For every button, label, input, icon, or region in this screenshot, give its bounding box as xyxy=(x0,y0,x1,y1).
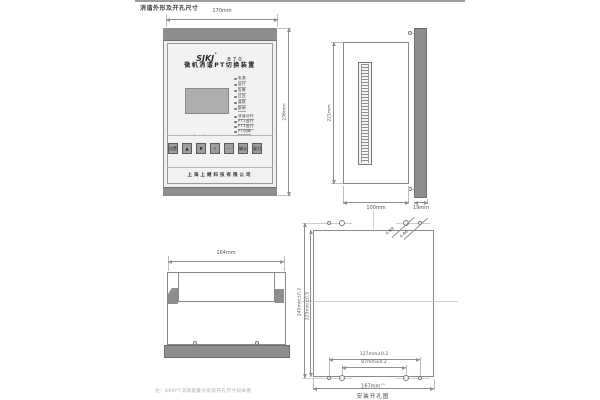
dim-label-front-height: 236mm xyxy=(283,103,288,120)
led-dot-icon xyxy=(234,121,237,124)
drawing-note: 注：860PT消谐装置外形及开孔尺寸同本图 xyxy=(155,388,252,394)
front-panel-top-band xyxy=(164,29,276,41)
led-indicator: 过压 xyxy=(234,94,246,100)
led-dot-icon xyxy=(234,126,237,129)
mount-hole-small xyxy=(327,376,331,380)
led-indicator: 电源 xyxy=(234,76,246,82)
terminal-block xyxy=(358,62,372,165)
led-indicator: 谐振 xyxy=(234,100,246,106)
panel-button-plus: ＋ xyxy=(210,143,220,154)
dim-label-top-width: 164mm xyxy=(215,250,236,256)
screw-icon xyxy=(408,31,412,35)
led-indicator: PT切换 xyxy=(234,129,251,135)
dim-line-depth xyxy=(343,202,409,203)
top-bezel-bar xyxy=(164,345,290,358)
mount-hole-small xyxy=(418,376,422,380)
ext-line xyxy=(284,256,285,271)
hole-axis xyxy=(396,378,430,379)
company-name: 上海上继科技有限公司 xyxy=(167,172,273,178)
led-indicator: 跳闸 xyxy=(234,106,246,112)
terminal-hatch xyxy=(361,64,369,163)
mounting-caption: 安装开孔图 xyxy=(357,392,390,400)
led-dot-icon xyxy=(234,116,237,119)
led-dot-icon xyxy=(234,102,237,105)
ext-line xyxy=(434,379,435,390)
panel-notch xyxy=(194,134,204,136)
mount-hole-large xyxy=(339,220,345,226)
registered-mark-icon: ® xyxy=(214,52,217,56)
dim-label-holes-outer: 127mm±0.2 xyxy=(359,352,389,358)
dim-label-case-height: 221mm xyxy=(328,104,333,121)
panel-button-set: 设置 xyxy=(168,143,178,154)
led-indicator: 告警 xyxy=(234,88,246,94)
led-dot-icon xyxy=(234,96,237,99)
drawing-page: 消谐外形及开孔尺寸 170mm 236mm SJKJ® 870 微机消谐PT切换… xyxy=(0,0,600,400)
dim-line-bezel-depth xyxy=(414,202,428,203)
dim-line-holes-inner xyxy=(342,367,406,368)
ext-line xyxy=(420,357,421,376)
centerline-vertical xyxy=(373,211,374,232)
led-dot-icon xyxy=(234,84,237,87)
tolerance-sup: +1 xyxy=(380,382,384,386)
dim-label-cutout-width: 167mm+1 xyxy=(360,381,386,390)
mount-hole-large xyxy=(339,375,345,381)
ext-line xyxy=(406,365,407,375)
screw-icon xyxy=(255,341,259,345)
dim-line-case-height xyxy=(333,42,334,184)
screw-icon xyxy=(193,341,197,345)
led-dot-icon xyxy=(234,78,237,81)
mount-hole-small xyxy=(327,221,331,225)
page-top-rule xyxy=(135,0,465,2)
led-indicator: 运行 xyxy=(234,82,246,88)
centerline-horizontal xyxy=(300,301,458,302)
dim-line-top-width xyxy=(168,261,284,262)
panel-button-reset: 复归 xyxy=(252,143,262,154)
side-case-outline xyxy=(343,42,409,184)
dim-line-height xyxy=(288,28,289,196)
panel-button-down: ▼ xyxy=(196,143,206,154)
device-name: 微机消谐PT切换装置 xyxy=(167,60,273,69)
dim-label-holes-vertical: 240mm±0.2 xyxy=(298,288,303,316)
panel-divider xyxy=(167,135,273,136)
mounting-clip-right xyxy=(275,289,284,303)
ext-line xyxy=(168,256,169,271)
page-title: 消谐外形及开孔尺寸 xyxy=(140,3,199,12)
dim-label-cutout-height: 225mm±0.5 xyxy=(306,292,311,320)
dim-label-depth: 100mm xyxy=(365,205,386,211)
led-dot-icon xyxy=(234,131,237,134)
panel-button-up: ▲ xyxy=(182,143,192,154)
side-bezel-plate xyxy=(414,28,427,198)
top-case-rear xyxy=(178,272,275,302)
dim-label-front-width: 170mm xyxy=(211,8,232,14)
panel-button-confirm: 确认 xyxy=(238,143,248,154)
led-dot-icon xyxy=(234,108,237,111)
dim-label-bezel-depth: 19mm xyxy=(412,205,430,211)
mount-hole-large xyxy=(403,375,409,381)
dim-label-holes-inner: 87mm±0.2 xyxy=(360,360,387,366)
led-dot-icon xyxy=(234,90,237,93)
panel-divider xyxy=(167,167,273,168)
front-panel-bottom-band xyxy=(164,187,276,195)
panel-button-minus: － xyxy=(224,143,234,154)
hole-axis xyxy=(396,223,430,224)
dim-line-width xyxy=(166,19,278,20)
lcd-screen xyxy=(185,88,229,114)
